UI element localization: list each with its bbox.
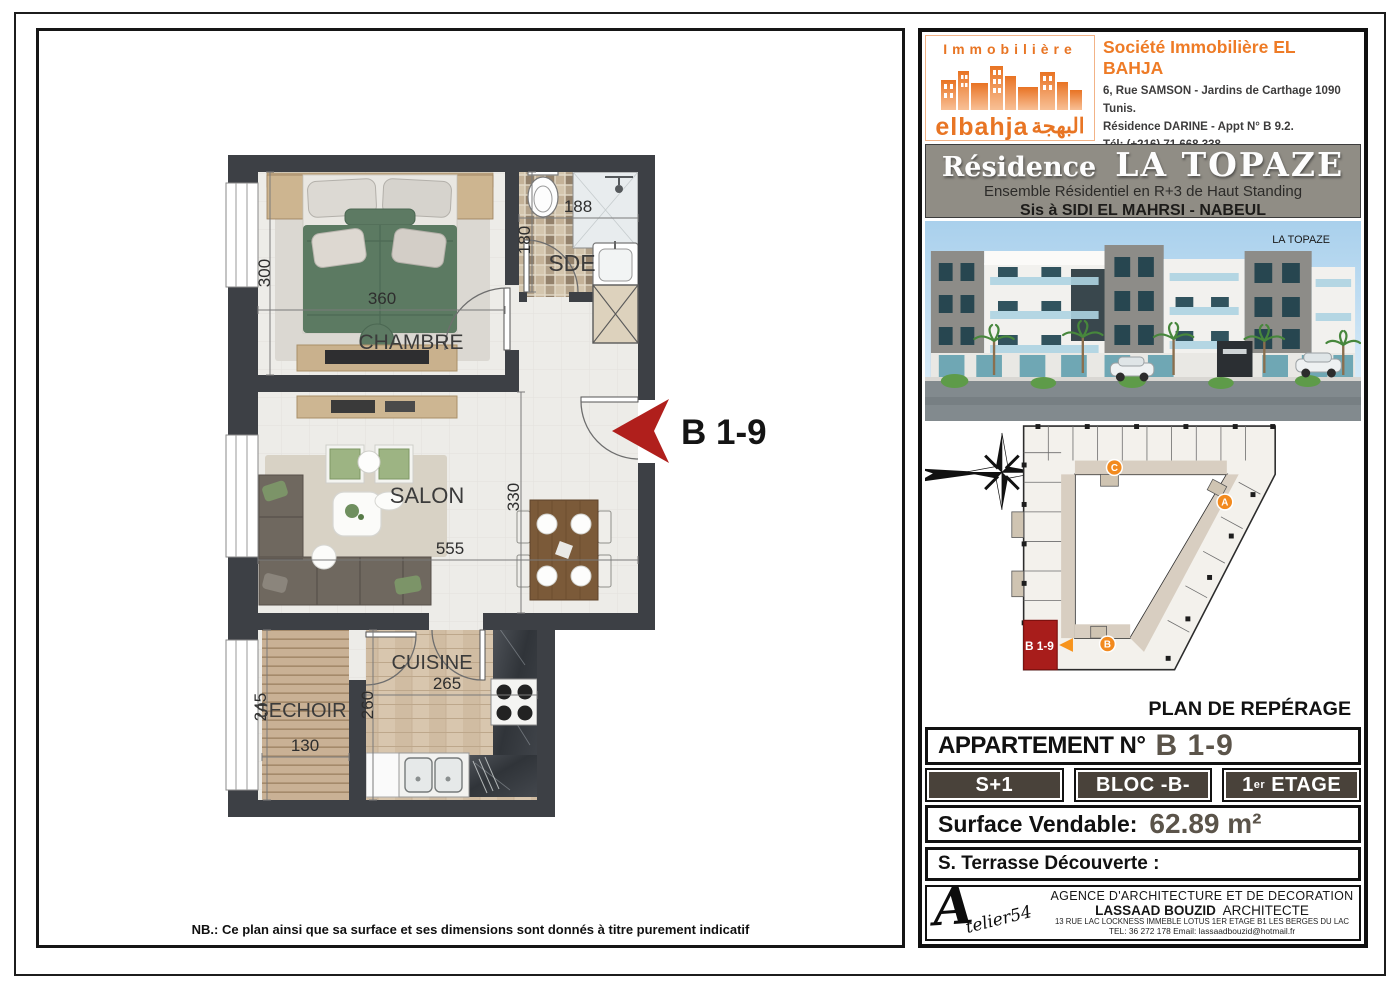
dim-sde-w: 188 bbox=[564, 197, 592, 216]
surface-box: Surface Vendable: 62.89 m² bbox=[925, 805, 1361, 843]
terrace-label: S. Terrasse Découverte : bbox=[938, 853, 1159, 875]
residence-title: Résidence LA TOPAZE bbox=[926, 148, 1360, 183]
dim-chambre-w: 360 bbox=[368, 289, 396, 308]
logo-wordmark: elbahja البهجة bbox=[935, 117, 1084, 137]
surface-label: Surface Vendable: bbox=[938, 811, 1137, 838]
label-cuisine: CUISINE bbox=[391, 652, 472, 674]
company-info: Société Immobilière EL BAHJA 6, Rue SAMS… bbox=[1095, 35, 1361, 141]
type-badge: S+1 bbox=[925, 768, 1064, 802]
residence-banner: Résidence LA TOPAZE Ensemble Résidentiel… bbox=[925, 144, 1361, 218]
atelier54-logo: A telier54 bbox=[931, 888, 1049, 938]
label-salon: SALON bbox=[390, 483, 465, 508]
wardrobe bbox=[593, 285, 638, 343]
floor-plan-frame: 300 360 188 180 330 555 265 260 245 130 … bbox=[36, 28, 905, 948]
company-name: Société Immobilière EL BAHJA bbox=[1103, 37, 1359, 79]
company-address-2: Résidence DARINE - Appt N° B 9.2. bbox=[1103, 118, 1359, 136]
dim-cuisine-w: 265 bbox=[433, 674, 461, 693]
bloc-badge: BLOC -B- bbox=[1074, 768, 1213, 802]
unit-arrow-label: B 1-9 bbox=[681, 413, 767, 452]
type-badge-label: S+1 bbox=[929, 772, 1060, 798]
dim-salon-w: 555 bbox=[436, 539, 464, 558]
logo-arabic-text: البهجة bbox=[1032, 118, 1085, 137]
logo-buildings-icon bbox=[935, 64, 1085, 110]
dim-salon-h: 330 bbox=[504, 483, 523, 511]
floor-badge-label: 1er ETAGE bbox=[1226, 772, 1357, 798]
bloc-badge-label: BLOC -B- bbox=[1078, 772, 1209, 798]
residence-subtitle: Ensemble Résidentiel en R+3 de Haut Stan… bbox=[926, 183, 1360, 202]
terrace-box: S. Terrasse Découverte : bbox=[925, 847, 1361, 881]
residence-title-name: LA TOPAZE bbox=[1102, 145, 1344, 184]
architect-contact: TEL: 36 272 178 Email: lassaadbouzid@hot… bbox=[1049, 927, 1355, 936]
architect-name-line: LASSAAD BOUZID ARCHITECTE bbox=[1049, 903, 1355, 918]
dim-cuisine-h: 260 bbox=[358, 691, 377, 719]
apartment-label: APPARTEMENT N° bbox=[938, 732, 1146, 760]
floor-plan-drawing: 300 360 188 180 330 555 265 260 245 130 … bbox=[225, 145, 925, 835]
building-photo: LA TOPAZE bbox=[925, 221, 1361, 421]
company-header: Immobilière bbox=[925, 35, 1361, 141]
architect-footer: A telier54 AGENCE D'ARCHITECTURE ET DE D… bbox=[925, 885, 1361, 941]
label-chambre: CHAMBRE bbox=[358, 331, 463, 354]
dim-sechoir-w: 130 bbox=[291, 736, 319, 755]
surface-value: 62.89 m² bbox=[1149, 808, 1261, 840]
block-a-badge: A bbox=[1221, 497, 1228, 508]
building-rendering: LA TOPAZE bbox=[925, 221, 1361, 421]
label-sde: SDE bbox=[548, 250, 595, 276]
label-sechoir: SECHOIR bbox=[255, 700, 346, 722]
company-logo: Immobilière bbox=[925, 35, 1095, 141]
residence-title-prefix: Résidence bbox=[942, 152, 1096, 183]
logo-elbahja-text: elbahja bbox=[935, 117, 1028, 137]
agency-line: AGENCE D'ARCHITECTURE ET DE DECORATION bbox=[1049, 889, 1355, 903]
logo-immobiliere-text: Immobilière bbox=[943, 41, 1077, 57]
info-panel: Immobilière bbox=[918, 28, 1368, 948]
block-c-badge: C bbox=[1111, 463, 1118, 474]
architect-text: AGENCE D'ARCHITECTURE ET DE DECORATION L… bbox=[1049, 889, 1355, 936]
apartment-number-box: APPARTEMENT N° B 1-9 bbox=[925, 727, 1361, 765]
floor-badge: 1er ETAGE bbox=[1222, 768, 1361, 802]
residence-location: Sis à SIDI EL MAHRSI - NABEUL bbox=[926, 201, 1360, 220]
site-plan: N bbox=[925, 423, 1361, 725]
block-b-badge: B bbox=[1104, 639, 1111, 650]
dim-chambre-h: 300 bbox=[255, 259, 274, 287]
dim-sde-h: 180 bbox=[515, 226, 534, 254]
console-table bbox=[297, 396, 457, 418]
site-plan-title: PLAN DE REPÉRAGE bbox=[1148, 697, 1351, 720]
company-address-1: 6, Rue SAMSON - Jardins de Carthage 1090… bbox=[1103, 82, 1359, 118]
highlighted-unit-label: B 1-9 bbox=[1025, 639, 1054, 653]
site-plan-drawing: N bbox=[925, 423, 1361, 725]
plan-disclaimer-note: NB.: Ce plan ainsi que sa surface et ses… bbox=[39, 922, 902, 937]
apartment-badges: S+1 BLOC -B- 1er ETAGE bbox=[925, 768, 1361, 802]
photo-sign-text: LA TOPAZE bbox=[1272, 234, 1330, 246]
compass-north-icon: N bbox=[925, 433, 1039, 510]
atelier-logo-rest: telier54 bbox=[964, 902, 1034, 938]
brochure-page: 300 360 188 180 330 555 265 260 245 130 … bbox=[0, 0, 1400, 988]
apartment-number: B 1-9 bbox=[1156, 729, 1234, 763]
